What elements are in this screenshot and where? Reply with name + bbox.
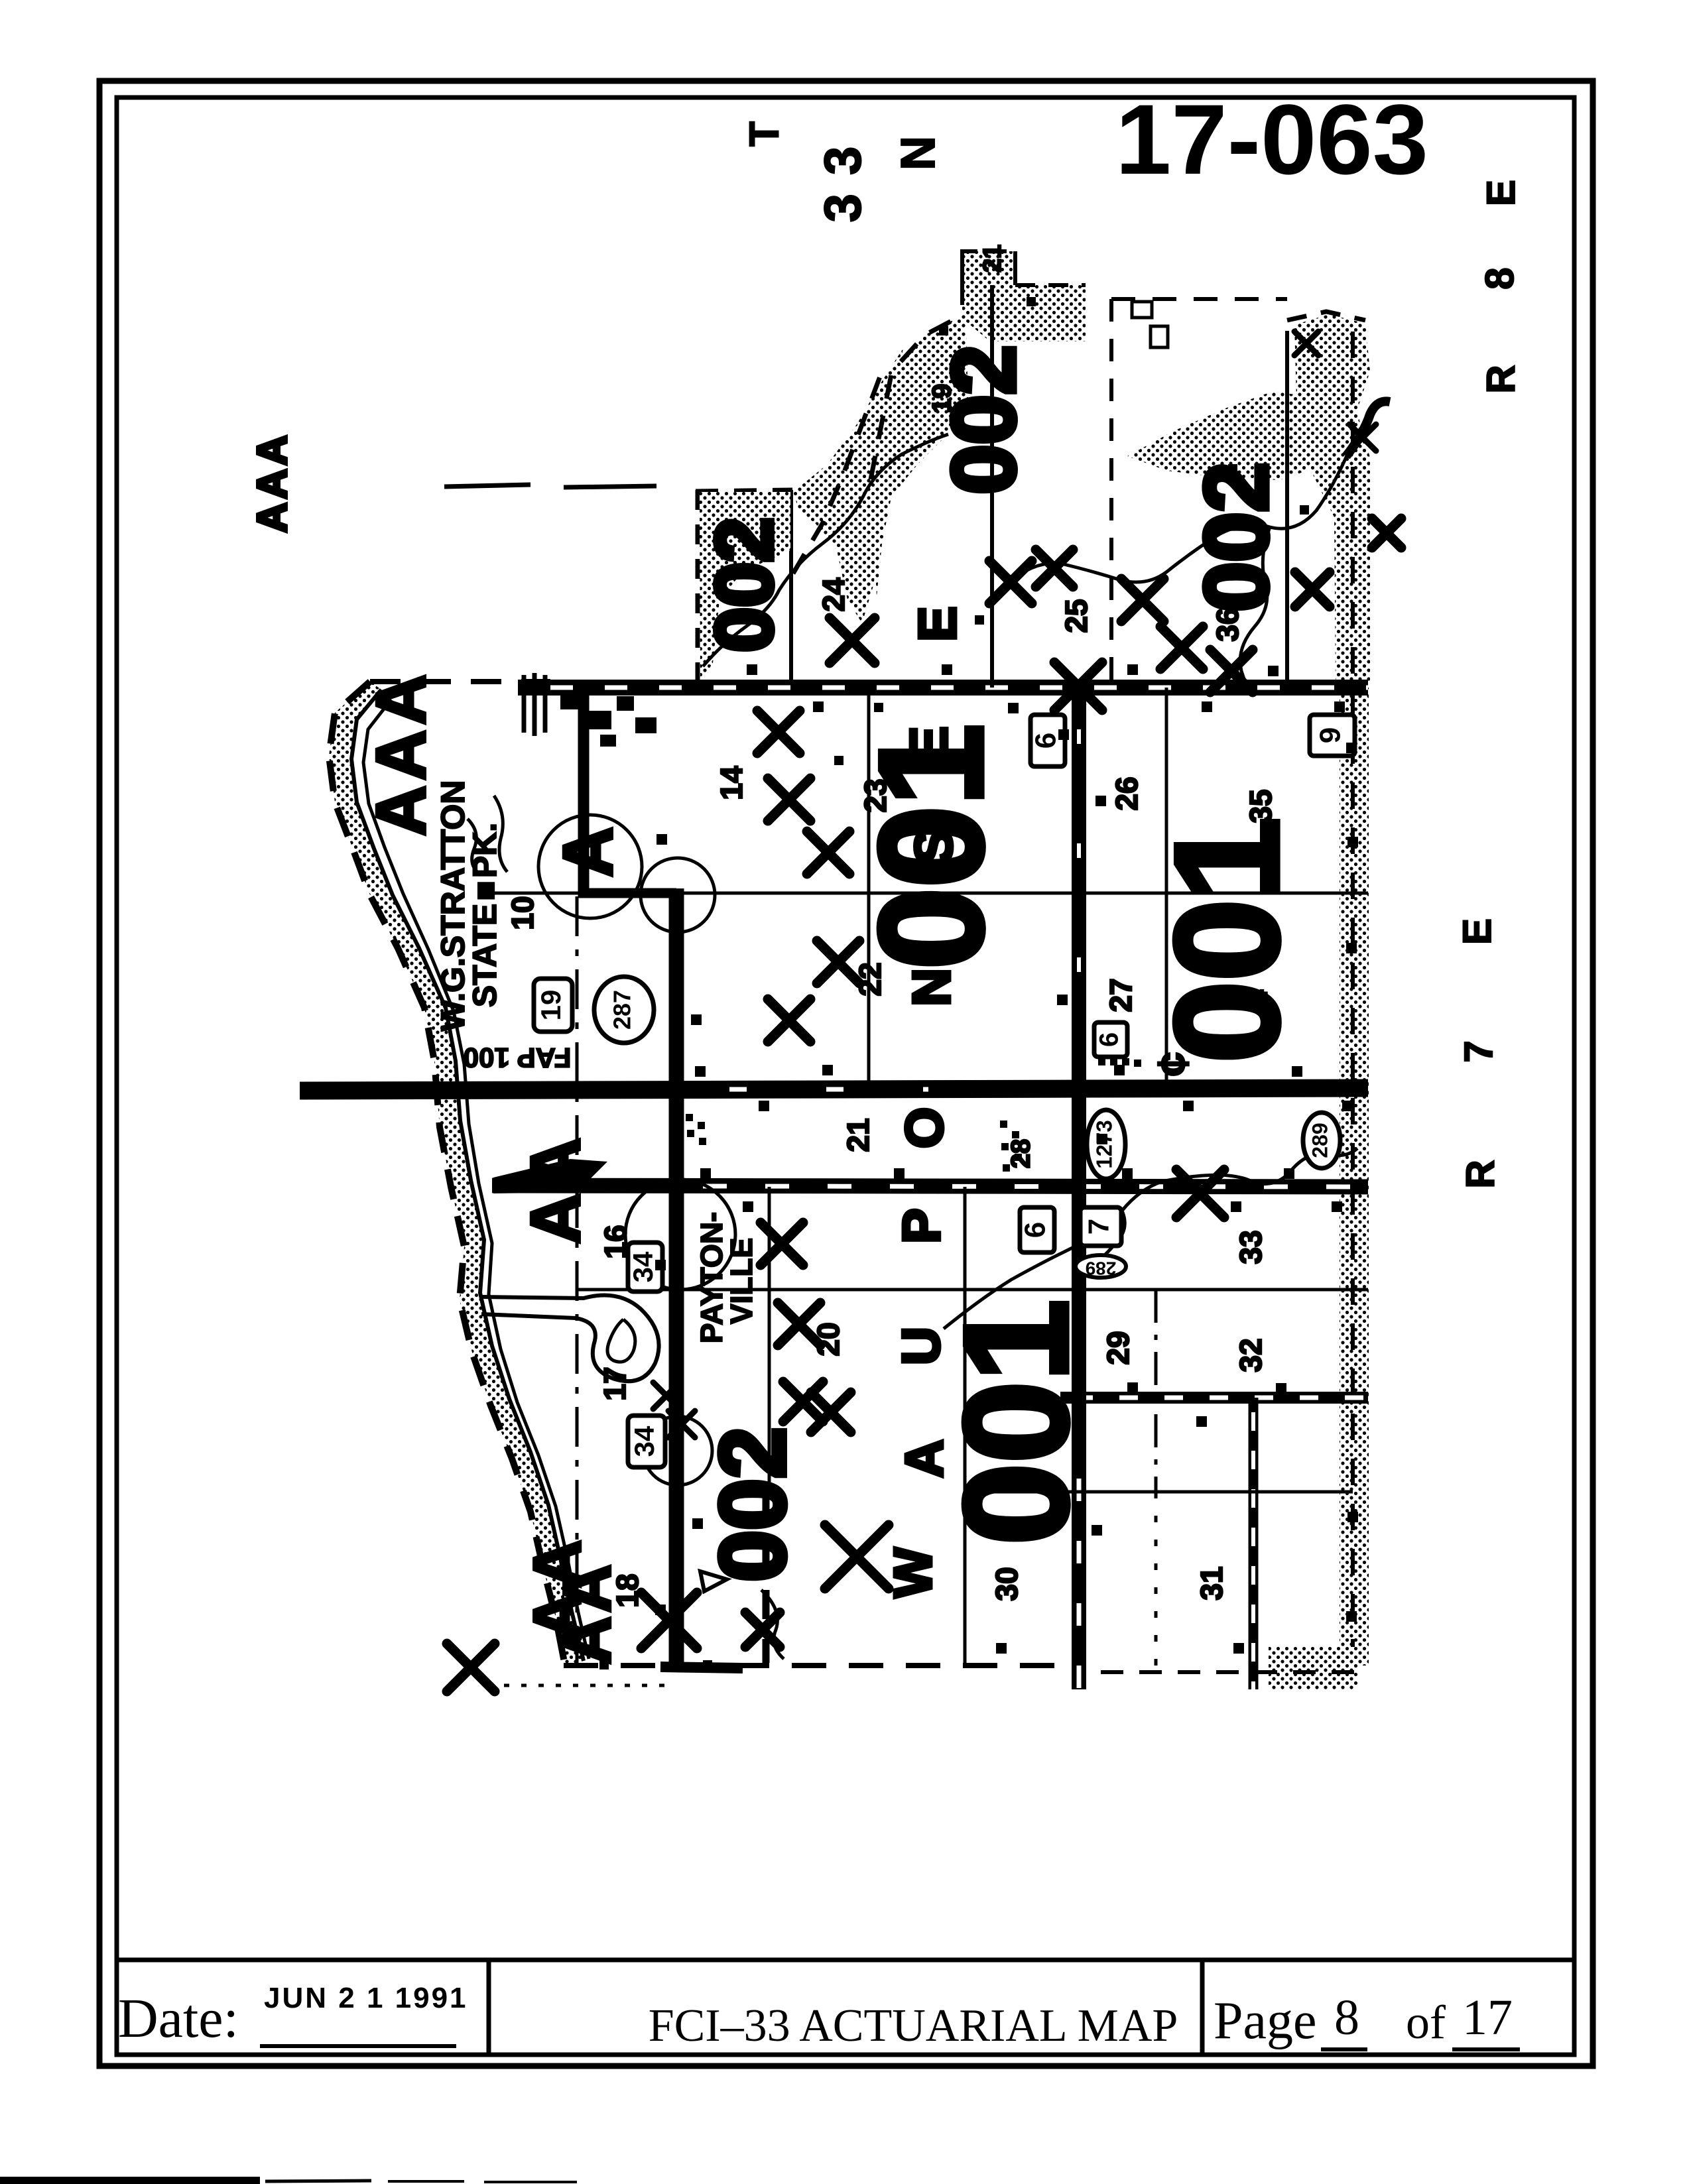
svg-text:AA: AA: [517, 1132, 595, 1244]
svg-text:001: 001: [1145, 818, 1310, 1063]
svg-text:287: 287: [609, 990, 636, 1030]
svg-text:4: 4: [1244, 989, 1273, 1004]
svg-text:34: 34: [629, 1426, 660, 1457]
svg-text:33: 33: [1233, 1230, 1268, 1264]
svg-text:24: 24: [816, 577, 851, 612]
svg-text:21: 21: [979, 245, 1007, 273]
svg-text:E: E: [1455, 918, 1499, 945]
svg-text:19: 19: [928, 384, 957, 414]
svg-text:O: O: [895, 1107, 954, 1148]
svg-text:27: 27: [1103, 978, 1138, 1012]
svg-text:30: 30: [989, 1567, 1024, 1601]
svg-text:7: 7: [1456, 1040, 1501, 1062]
svg-text:23: 23: [858, 778, 893, 812]
svg-text:17: 17: [597, 1366, 632, 1400]
svg-text:AAA: AAA: [249, 432, 295, 532]
svg-text:A: A: [895, 1439, 954, 1478]
svg-text:36: 36: [1210, 607, 1245, 641]
svg-text:17-063: 17-063: [1115, 84, 1428, 195]
svg-text:29: 29: [1101, 1331, 1135, 1365]
svg-text:JUN 2 1 1991: JUN 2 1 1991: [264, 1982, 468, 2014]
svg-text:25: 25: [1059, 599, 1093, 633]
svg-text:10: 10: [505, 896, 540, 930]
svg-text:U: U: [891, 1327, 950, 1365]
svg-text:002: 002: [1186, 462, 1286, 611]
svg-text:002: 002: [700, 1427, 804, 1582]
svg-text:N: N: [902, 968, 961, 1006]
svg-text:001: 001: [934, 1300, 1099, 1545]
svg-text:T: T: [741, 121, 787, 147]
svg-text:FCI–33 ACTUARIAL MAP: FCI–33 ACTUARIAL MAP: [649, 2000, 1178, 2051]
svg-text:FAP 100: FAP 100: [464, 1042, 572, 1073]
svg-text:S: S: [904, 829, 963, 864]
svg-text:8: 8: [1334, 1990, 1359, 2045]
svg-text:STATE ■ PK.: STATE ■ PK.: [466, 823, 503, 1007]
svg-text:14: 14: [714, 766, 749, 800]
svg-text:26: 26: [1109, 776, 1144, 810]
svg-text:A: A: [550, 827, 627, 877]
svg-text:7: 7: [1083, 1219, 1115, 1235]
svg-text:31: 31: [1194, 1566, 1229, 1600]
svg-text:289: 289: [1308, 1122, 1332, 1158]
svg-text:002: 002: [934, 345, 1034, 494]
svg-text:17: 17: [1462, 1990, 1513, 2045]
svg-text:P: P: [892, 1208, 951, 1243]
svg-text:8: 8: [1477, 267, 1522, 289]
svg-text:6: 6: [1019, 1222, 1052, 1238]
svg-text:9: 9: [1314, 727, 1347, 743]
svg-text:6: 6: [1030, 733, 1062, 749]
svg-text:of: of: [1406, 1996, 1446, 2049]
svg-text:VILLE: VILLE: [724, 1238, 759, 1324]
svg-text:21: 21: [841, 1118, 875, 1152]
svg-text:33: 33: [814, 128, 872, 223]
svg-text:34: 34: [627, 1251, 658, 1282]
svg-text:R: R: [1458, 1160, 1503, 1188]
svg-text:32: 32: [1233, 1338, 1268, 1372]
svg-text:¢: ¢: [1148, 1052, 1197, 1077]
svg-text:35: 35: [1243, 789, 1278, 823]
svg-text:002: 002: [699, 517, 789, 652]
svg-text:289: 289: [1086, 1258, 1117, 1279]
svg-text:AAA: AAA: [363, 669, 440, 835]
svg-text:6: 6: [1095, 1032, 1124, 1047]
svg-text:E: E: [1479, 180, 1523, 206]
svg-text:N: N: [892, 136, 945, 170]
svg-text:R: R: [1479, 365, 1523, 393]
svg-text:Page: Page: [1214, 1992, 1317, 2050]
svg-text:19: 19: [535, 990, 566, 1021]
svg-text:E: E: [899, 726, 958, 761]
svg-text:E: E: [908, 606, 967, 641]
svg-text:Date:: Date:: [118, 1988, 239, 2049]
